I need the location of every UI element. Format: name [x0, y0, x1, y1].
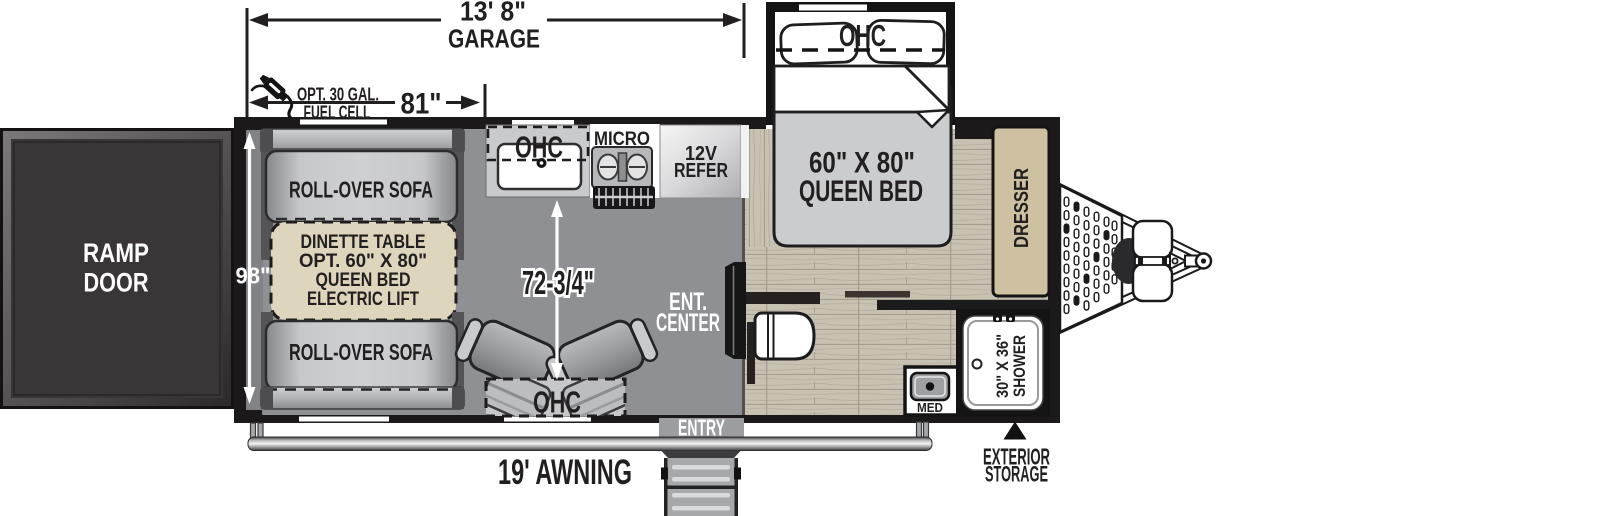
svg-text:ELECTRIC LIFT: ELECTRIC LIFT: [307, 289, 419, 310]
svg-text:OPT. 60" X 80": OPT. 60" X 80": [299, 251, 427, 272]
svg-text:MED: MED: [917, 401, 943, 415]
svg-text:ROLL-OVER SOFA: ROLL-OVER SOFA: [289, 177, 433, 203]
svg-text:CENTER: CENTER: [656, 309, 720, 337]
svg-text:REFER: REFER: [674, 160, 728, 182]
svg-text:ROLL-OVER SOFA: ROLL-OVER SOFA: [289, 339, 433, 365]
svg-text:DINETTE TABLE: DINETTE TABLE: [301, 232, 426, 253]
svg-text:RAMP: RAMP: [83, 238, 149, 268]
svg-text:81": 81": [401, 88, 442, 121]
svg-text:72-3/4": 72-3/4": [522, 264, 594, 301]
svg-text:QUEEN BED: QUEEN BED: [316, 270, 411, 291]
svg-text:FUEL CELL: FUEL CELL: [304, 102, 371, 123]
svg-text:OHC: OHC: [515, 130, 563, 165]
svg-text:SHOWER: SHOWER: [1010, 335, 1029, 397]
svg-text:DOOR: DOOR: [84, 268, 149, 298]
svg-text:OHC: OHC: [839, 18, 886, 53]
svg-text:98": 98": [236, 263, 271, 289]
svg-text:19' AWNING: 19' AWNING: [498, 453, 632, 492]
svg-text:OHC: OHC: [533, 385, 581, 420]
svg-text:DRESSER: DRESSER: [1011, 168, 1033, 248]
svg-text:STORAGE: STORAGE: [985, 462, 1048, 487]
svg-text:GARAGE: GARAGE: [448, 24, 540, 54]
svg-text:QUEEN BED: QUEEN BED: [799, 175, 923, 208]
